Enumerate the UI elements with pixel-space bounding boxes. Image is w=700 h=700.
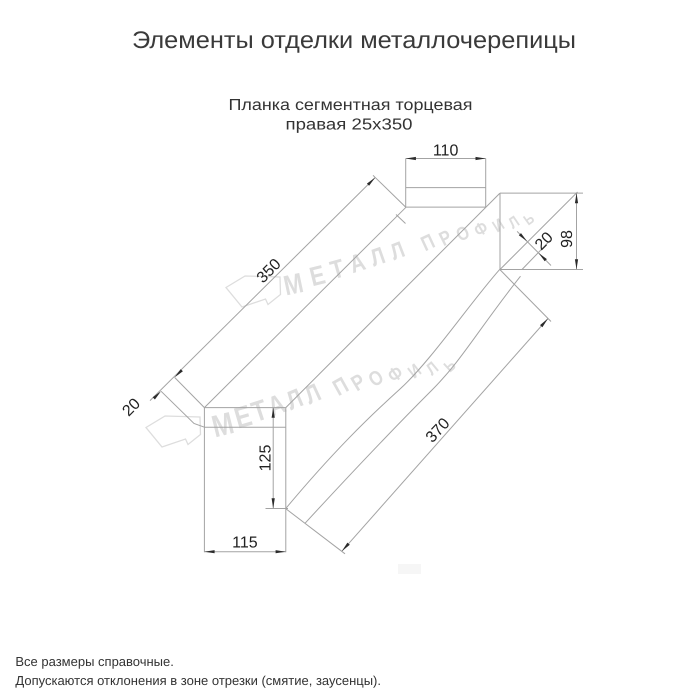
svg-text:125: 125	[258, 445, 275, 472]
svg-text:98: 98	[559, 230, 576, 248]
svg-text:Элементы отделки металлочерепи: Элементы отделки металлочерепицы	[132, 27, 576, 54]
svg-text:115: 115	[232, 535, 258, 552]
svg-text:правая 25x350: правая 25x350	[286, 117, 413, 134]
svg-text:Допускаются отклонения в зоне: Допускаются отклонения в зоне отрезки (с…	[15, 673, 381, 688]
svg-text:Все размеры справочные.: Все размеры справочные.	[15, 654, 173, 669]
svg-text:110: 110	[433, 143, 459, 160]
svg-text:Планка сегментная торцевая: Планка сегментная торцевая	[229, 97, 473, 114]
